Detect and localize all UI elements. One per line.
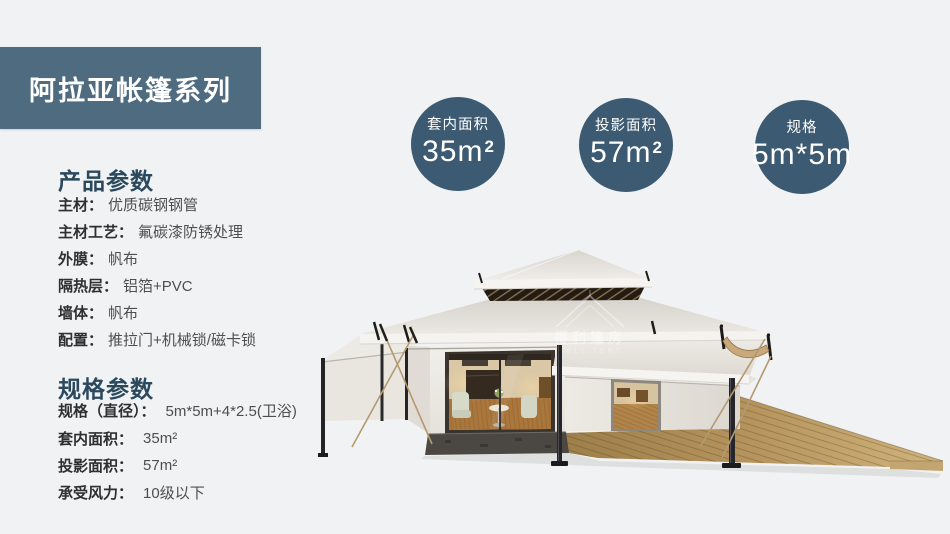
badge-size: 规格 5m*5m (755, 100, 849, 194)
badge-projection-area: 投影面积 57m2 (579, 98, 673, 192)
param-row-insulation: 隔热层： 铝箔+PVC (58, 274, 193, 296)
spec-row-indoor-area: 套内面积： 35m² (58, 427, 177, 449)
corner-wall-lit (408, 346, 430, 434)
param-row-process: 主材工艺： 氟碳漆防锈处理 (58, 220, 243, 242)
param-row-wall: 墙体： 帆布 (58, 301, 138, 323)
product-sheet: 阿拉亚帐篷系列 产品参数 主材： 优质碳钢钢管 主材工艺： 氟碳漆防锈处理 外膜… (0, 0, 950, 534)
svg-text:得利篷房: 得利篷房 (553, 330, 626, 346)
svg-text:WELL TENT: WELL TENT (557, 348, 623, 355)
side-table (636, 390, 648, 402)
spec-row-size: 规格（直径）： 5m*5m+4*2.5(卫浴) (58, 399, 297, 421)
left-side-awning (318, 334, 415, 457)
spec-row-wind: 承受风力： 10级以下 (58, 481, 205, 503)
series-banner: 阿拉亚帐篷系列 (0, 47, 261, 129)
badge-indoor-area: 套内面积 35m2 (411, 97, 505, 191)
right-wing-window (611, 379, 661, 431)
deck-step (890, 461, 943, 471)
series-title: 阿拉亚帐篷系列 (0, 69, 232, 108)
product-params-heading: 产品参数 (58, 162, 154, 196)
stone-base (425, 432, 569, 455)
spec-row-projection-area: 投影面积： 57m² (58, 454, 177, 476)
armchair-right (521, 395, 537, 418)
param-row-material: 主材： 优质碳钢钢管 (58, 193, 198, 215)
pagoda-top-roof (474, 250, 652, 289)
living-room-window (443, 350, 555, 434)
tent-render-illustration: 得利篷房 WELL TENT (310, 224, 950, 534)
low-cabinet (617, 388, 630, 397)
cabinet (539, 377, 551, 398)
left-canvas-panel (322, 352, 408, 421)
param-row-config: 配置： 推拉门+机械锁/磁卡锁 (58, 328, 256, 350)
param-row-outer-membrane: 外膜： 帆布 (58, 247, 138, 269)
